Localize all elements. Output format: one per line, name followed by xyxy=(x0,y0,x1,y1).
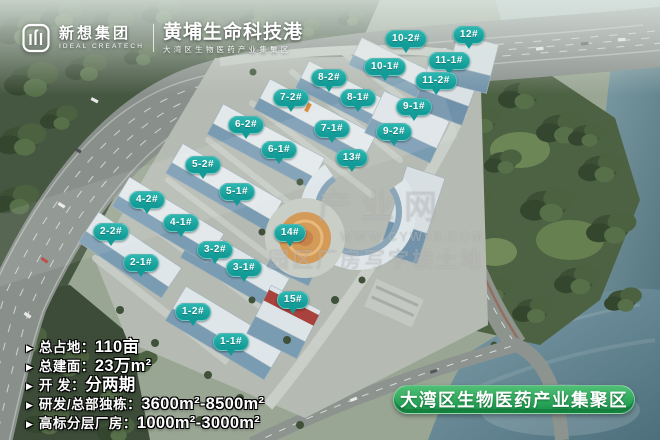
poster-canvas: 1-1#1-2#2-1#2-2#3-1#3-2#4-1#4-2#5-1#5-2#… xyxy=(0,0,660,440)
park-title: 黄埔生命科技港 xyxy=(163,23,303,42)
spec-list: ▶总占地：110亩▶总建面：23万m²▶开 发：分两期▶研发/总部独栋：3600… xyxy=(26,339,264,434)
brand-name-en: IDEAL CREATECH xyxy=(59,44,144,51)
triangle-bullet-icon: ▶ xyxy=(26,359,33,375)
spec-label: 总占地： xyxy=(39,340,95,356)
triangle-bullet-icon: ▶ xyxy=(26,378,33,394)
park-subtitle: 大湾区生物医药产业集聚区 xyxy=(163,46,303,54)
cluster-banner-text: 大湾区生物医药产业集聚区 xyxy=(400,387,628,412)
brand-name: 新想集团 xyxy=(59,26,144,41)
spec-value: 3600m²-8500m² xyxy=(141,396,264,412)
spec-row: ▶总占地：110亩 xyxy=(26,339,264,357)
spec-row: ▶高标分层厂房：1000m²-3000m² xyxy=(26,415,264,433)
spec-row: ▶研发/总部独栋：3600m²-8500m² xyxy=(26,396,264,414)
header: 新想集团 IDEAL CREATECH 黄埔生命科技港 大湾区生物医药产业集聚区 xyxy=(22,23,303,54)
park-title-block: 黄埔生命科技港 大湾区生物医药产业集聚区 xyxy=(163,23,303,54)
triangle-bullet-icon: ▶ xyxy=(26,340,33,356)
spec-value: 110亩 xyxy=(95,339,139,355)
triangle-bullet-icon: ▶ xyxy=(26,397,33,413)
ideal-createch-logo-icon xyxy=(22,23,50,53)
spec-value: 1000m²-3000m² xyxy=(137,415,260,431)
cluster-banner: 大湾区生物医药产业集聚区 xyxy=(393,385,635,414)
spec-value: 分两期 xyxy=(85,377,135,393)
spec-label: 研发/总部独栋： xyxy=(39,397,141,413)
brand-block: 新想集团 IDEAL CREATECH xyxy=(59,26,144,51)
spec-row: ▶总建面：23万m² xyxy=(26,358,264,376)
spec-row: ▶开 发：分两期 xyxy=(26,377,264,395)
header-divider xyxy=(153,24,154,52)
spec-label: 高标分层厂房： xyxy=(39,416,137,432)
spec-label: 开 发： xyxy=(39,378,85,394)
spec-label: 总建面： xyxy=(39,359,95,375)
triangle-bullet-icon: ▶ xyxy=(26,416,33,432)
spec-value: 23万m² xyxy=(95,358,152,374)
